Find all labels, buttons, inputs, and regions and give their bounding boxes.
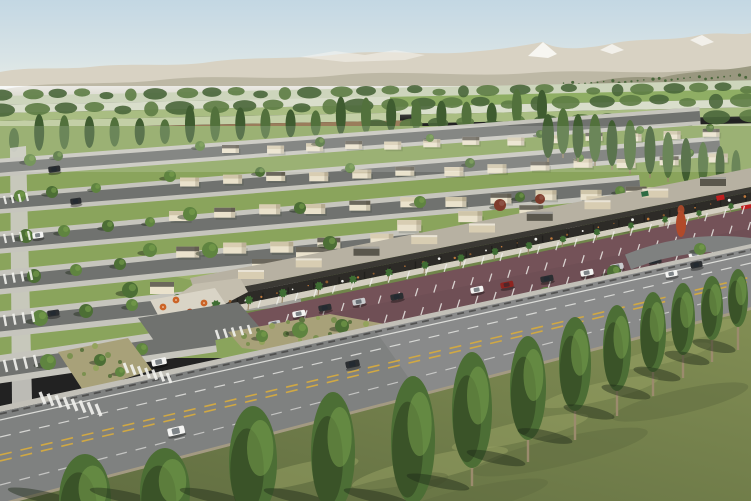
tree-highlight bbox=[149, 245, 155, 251]
tree-highlight bbox=[129, 284, 136, 291]
distant-tree-cluster bbox=[535, 84, 553, 93]
building-roof bbox=[150, 282, 174, 287]
distant-tree-cluster bbox=[253, 91, 268, 99]
tree-canopy-light bbox=[524, 349, 544, 401]
shrub-dot bbox=[485, 250, 487, 252]
distant-tree-cluster bbox=[228, 87, 245, 96]
distant-tree-cluster bbox=[100, 92, 114, 99]
shrub-dot bbox=[631, 218, 634, 221]
tree-highlight bbox=[419, 198, 424, 203]
tree-highlight bbox=[341, 321, 347, 327]
shrub-dot bbox=[307, 285, 308, 286]
shrub-dot bbox=[550, 237, 553, 240]
shrub-dot bbox=[744, 76, 747, 79]
shrub-dot bbox=[404, 265, 406, 267]
shrub-dot bbox=[689, 77, 690, 78]
distant-tree-cluster bbox=[510, 85, 531, 95]
tree-highlight bbox=[169, 172, 174, 177]
house-side bbox=[552, 190, 556, 200]
distant-tree-cluster bbox=[433, 89, 446, 96]
distant-tree-cluster bbox=[177, 88, 198, 98]
tree-canopy-light bbox=[408, 392, 432, 456]
tree-highlight bbox=[613, 267, 619, 273]
shrub bbox=[348, 320, 352, 324]
house-side bbox=[462, 197, 466, 207]
shrub bbox=[92, 343, 98, 349]
shrub bbox=[82, 372, 86, 376]
shrub bbox=[93, 365, 99, 371]
tree-canopy-light bbox=[159, 459, 187, 501]
rooftop-unit-top bbox=[469, 224, 495, 226]
rooftop-unit-top bbox=[527, 212, 553, 214]
distant-tree-cluster bbox=[382, 86, 400, 95]
distant-tree-cluster bbox=[664, 83, 685, 93]
shrub-dot bbox=[670, 79, 672, 81]
tree-highlight bbox=[85, 306, 91, 312]
tree-canopy-light bbox=[650, 302, 664, 342]
tree-canopy-light bbox=[467, 367, 489, 425]
distant-tree-cluster bbox=[279, 87, 291, 100]
tree-canopy-light bbox=[571, 329, 589, 376]
entry-art-sculpture-top bbox=[678, 205, 685, 215]
shrub bbox=[118, 360, 122, 364]
shrub-dot bbox=[292, 289, 294, 291]
tree-highlight bbox=[519, 193, 524, 198]
distant-tree-cluster bbox=[630, 84, 654, 95]
shrub-dot bbox=[563, 82, 564, 83]
shrub bbox=[246, 342, 250, 346]
distant-tree-cluster bbox=[619, 95, 641, 106]
distant-tree-cluster bbox=[471, 97, 490, 107]
house-side bbox=[289, 242, 294, 253]
tree-canopy-light bbox=[709, 284, 721, 316]
house-side bbox=[238, 175, 242, 184]
shrub-dot bbox=[683, 77, 685, 79]
distant-tree-cluster bbox=[55, 103, 77, 114]
shrub-dot bbox=[469, 253, 471, 255]
shrub-dot bbox=[582, 230, 584, 232]
distant-tree-cluster bbox=[649, 94, 669, 104]
tree-highlight bbox=[95, 184, 100, 189]
poplar-tree bbox=[512, 89, 522, 126]
house-side bbox=[477, 211, 482, 222]
distant-tree-cluster bbox=[125, 89, 137, 101]
shrub-dot bbox=[643, 79, 645, 81]
shrub-dot bbox=[738, 74, 741, 77]
shrub-dot bbox=[597, 81, 599, 83]
house-side bbox=[231, 208, 235, 218]
shrub-dot bbox=[571, 81, 574, 84]
tree-canopy-light bbox=[328, 407, 352, 467]
tree-highlight bbox=[141, 345, 146, 350]
car-cabin bbox=[51, 167, 57, 172]
rooftop-unit-top bbox=[354, 247, 380, 249]
shrub-dot bbox=[658, 77, 661, 80]
shrub-dot bbox=[438, 257, 441, 260]
tree-canopy-light bbox=[736, 276, 747, 305]
tree-highlight bbox=[189, 209, 195, 215]
shrub-dot bbox=[341, 280, 344, 283]
tree-highlight bbox=[699, 245, 704, 250]
shrub-dot bbox=[630, 80, 632, 82]
shrub bbox=[331, 317, 337, 323]
tree-highlight bbox=[539, 195, 544, 200]
shrub-dot bbox=[454, 257, 456, 259]
rooftop-unit-top bbox=[296, 258, 322, 260]
distant-tree-cluster bbox=[552, 96, 580, 109]
tree-highlight bbox=[119, 368, 124, 373]
car-cabin bbox=[35, 233, 40, 238]
tree-highlight bbox=[299, 324, 306, 331]
shrub-dot bbox=[603, 81, 605, 83]
shrub-dot bbox=[711, 77, 713, 79]
shrub-dot bbox=[276, 292, 278, 294]
distant-tree-cluster bbox=[586, 87, 600, 94]
house-side bbox=[242, 243, 247, 254]
distant-tree-cluster bbox=[322, 99, 337, 114]
shrub-dot bbox=[325, 280, 328, 283]
distant-tree-cluster bbox=[233, 100, 256, 111]
shrub-dot bbox=[677, 78, 679, 80]
car-cabin bbox=[50, 311, 56, 316]
shrub-dot bbox=[517, 242, 518, 243]
tree-canopy-light bbox=[614, 316, 629, 359]
rooftop-unit-top bbox=[585, 200, 611, 202]
tree-highlight bbox=[63, 227, 68, 232]
umbrella-top bbox=[203, 302, 205, 304]
house-side bbox=[366, 201, 370, 211]
house-side bbox=[321, 204, 325, 214]
tree-highlight bbox=[39, 312, 46, 319]
house-side bbox=[281, 172, 285, 181]
tree-highlight bbox=[149, 218, 154, 223]
shrub-dot bbox=[728, 199, 731, 202]
shrub-dot bbox=[698, 75, 701, 78]
distant-tree-cluster bbox=[590, 95, 615, 107]
depth-haze bbox=[0, 126, 751, 172]
shrub-dot bbox=[260, 296, 262, 298]
tree-highlight bbox=[33, 271, 39, 277]
distant-tree-cluster bbox=[85, 102, 105, 112]
distant-tree-cluster bbox=[293, 103, 311, 112]
tree-highlight bbox=[51, 188, 56, 193]
distant-tree-cluster bbox=[144, 102, 158, 117]
distant-tree-cluster bbox=[561, 84, 577, 92]
shrub-dot bbox=[229, 300, 232, 303]
shrub-dot bbox=[373, 273, 375, 275]
tree-highlight bbox=[131, 301, 136, 306]
shrub bbox=[67, 353, 73, 359]
tree-highlight bbox=[75, 266, 80, 271]
shrub-dot bbox=[611, 79, 614, 82]
car-cabin bbox=[73, 199, 78, 204]
tree-highlight bbox=[119, 260, 124, 265]
distant-tree-cluster bbox=[612, 84, 624, 96]
distant-tree-cluster bbox=[25, 103, 50, 115]
distant-tree-cluster bbox=[715, 82, 732, 91]
tree-canopy-light bbox=[680, 292, 693, 328]
shrub bbox=[105, 352, 111, 358]
shrub bbox=[269, 323, 275, 329]
distant-tree-cluster bbox=[114, 106, 131, 115]
tree-highlight bbox=[209, 244, 216, 251]
shrub-dot bbox=[704, 78, 707, 81]
house-side bbox=[507, 194, 511, 204]
distant-tree-cluster bbox=[331, 86, 353, 97]
umbrella-top bbox=[162, 306, 164, 308]
distant-tree-cluster bbox=[356, 86, 376, 96]
shrub-dot bbox=[717, 76, 719, 78]
rooftop-unit-top bbox=[411, 235, 437, 237]
distant-tree-cluster bbox=[143, 88, 167, 99]
distant-tree-cluster bbox=[74, 88, 90, 96]
shrub-dot bbox=[723, 76, 725, 78]
shrub-dot bbox=[647, 218, 650, 221]
distant-tree-cluster bbox=[23, 89, 44, 99]
house-side bbox=[416, 220, 421, 231]
scene-canvas bbox=[0, 0, 751, 501]
shrub-dot bbox=[651, 77, 654, 80]
umbrella-top bbox=[175, 299, 177, 301]
tree-highlight bbox=[107, 222, 112, 227]
distant-tree-cluster bbox=[297, 87, 321, 99]
shrub bbox=[286, 320, 290, 324]
house-side bbox=[324, 172, 328, 181]
tree-highlight bbox=[499, 201, 504, 206]
shrub-dot bbox=[613, 223, 614, 224]
distant-tree-cluster bbox=[679, 98, 696, 107]
shrub-dot bbox=[663, 214, 665, 216]
distant-tree-cluster bbox=[202, 87, 221, 97]
shrub-dot bbox=[357, 276, 359, 278]
distant-tree-cluster bbox=[689, 83, 708, 93]
tree-highlight bbox=[299, 204, 304, 209]
shrub-dot bbox=[534, 238, 537, 241]
shrub-dot bbox=[566, 234, 568, 236]
shrub bbox=[80, 348, 84, 352]
shrub bbox=[363, 321, 369, 327]
shrub-dot bbox=[744, 195, 747, 198]
tree-highlight bbox=[619, 187, 624, 192]
distant-tree-cluster bbox=[407, 85, 422, 93]
rooftop-unit-top bbox=[642, 189, 668, 191]
shrub-dot bbox=[730, 75, 732, 77]
shrub-dot bbox=[664, 79, 667, 82]
tree-canopy-light bbox=[247, 420, 273, 476]
tree-highlight bbox=[261, 332, 266, 337]
poplar-tree bbox=[436, 101, 446, 130]
aerial-rendering bbox=[0, 0, 751, 501]
rooftop-unit-top bbox=[700, 177, 726, 179]
tree-highlight bbox=[329, 238, 335, 244]
house-side bbox=[195, 178, 199, 187]
shrub-dot bbox=[501, 246, 503, 248]
shrub-dot bbox=[597, 226, 599, 228]
shrub bbox=[316, 316, 320, 320]
shrub-dot bbox=[710, 203, 712, 205]
distant-tree-cluster bbox=[458, 85, 469, 97]
shrub-dot bbox=[637, 80, 639, 82]
shrub-dot bbox=[694, 207, 696, 209]
distant-tree-cluster bbox=[476, 85, 499, 96]
rooftop-unit-top bbox=[238, 270, 264, 272]
distant-tree-cluster bbox=[703, 110, 730, 124]
distant-tree-cluster bbox=[49, 89, 67, 98]
tree-highlight bbox=[47, 356, 54, 363]
distant-tree-cluster bbox=[709, 94, 723, 109]
house-side bbox=[276, 204, 280, 214]
tree-highlight bbox=[99, 356, 104, 361]
